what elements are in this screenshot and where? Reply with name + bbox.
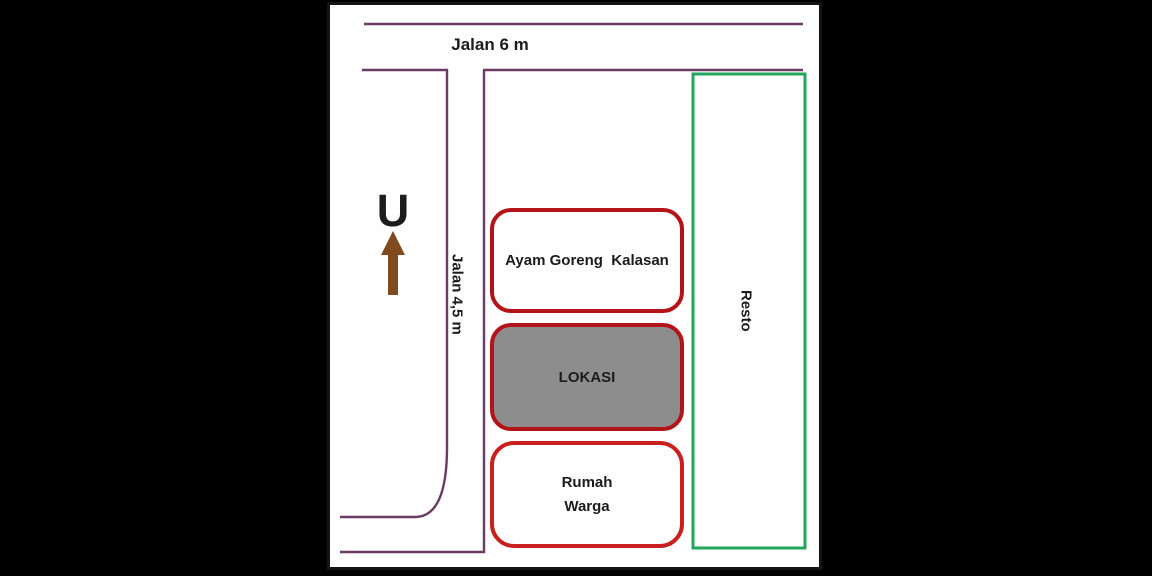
building-ayam-goreng-kalasan-label: Ayam Goreng Kalasan [505,252,669,269]
north-indicator-letter: U [365,188,421,233]
building-ayam-goreng-kalasan: Ayam Goreng Kalasan [490,208,684,313]
north-arrow-icon [381,231,405,295]
building-lokasi-label: LOKASI [559,369,616,386]
building-lokasi: LOKASI [490,323,684,431]
building-resto-label: Resto [737,290,754,332]
building-rumah-warga-label-line2: Warga [564,498,609,515]
building-rumah-warga: Rumah Warga [490,441,684,548]
road-label-jalan-6m: Jalan 6 m [430,36,550,55]
map-canvas: Jalan 6 m U Jalan 4,5 m Ayam Goreng Kala… [327,2,822,570]
road-label-jalan-4-5m: Jalan 4,5 m [448,254,465,335]
building-rumah-warga-label-line1: Rumah [562,474,613,491]
sketch-map-stage: Jalan 6 m U Jalan 4,5 m Ayam Goreng Kala… [0,0,1152,576]
